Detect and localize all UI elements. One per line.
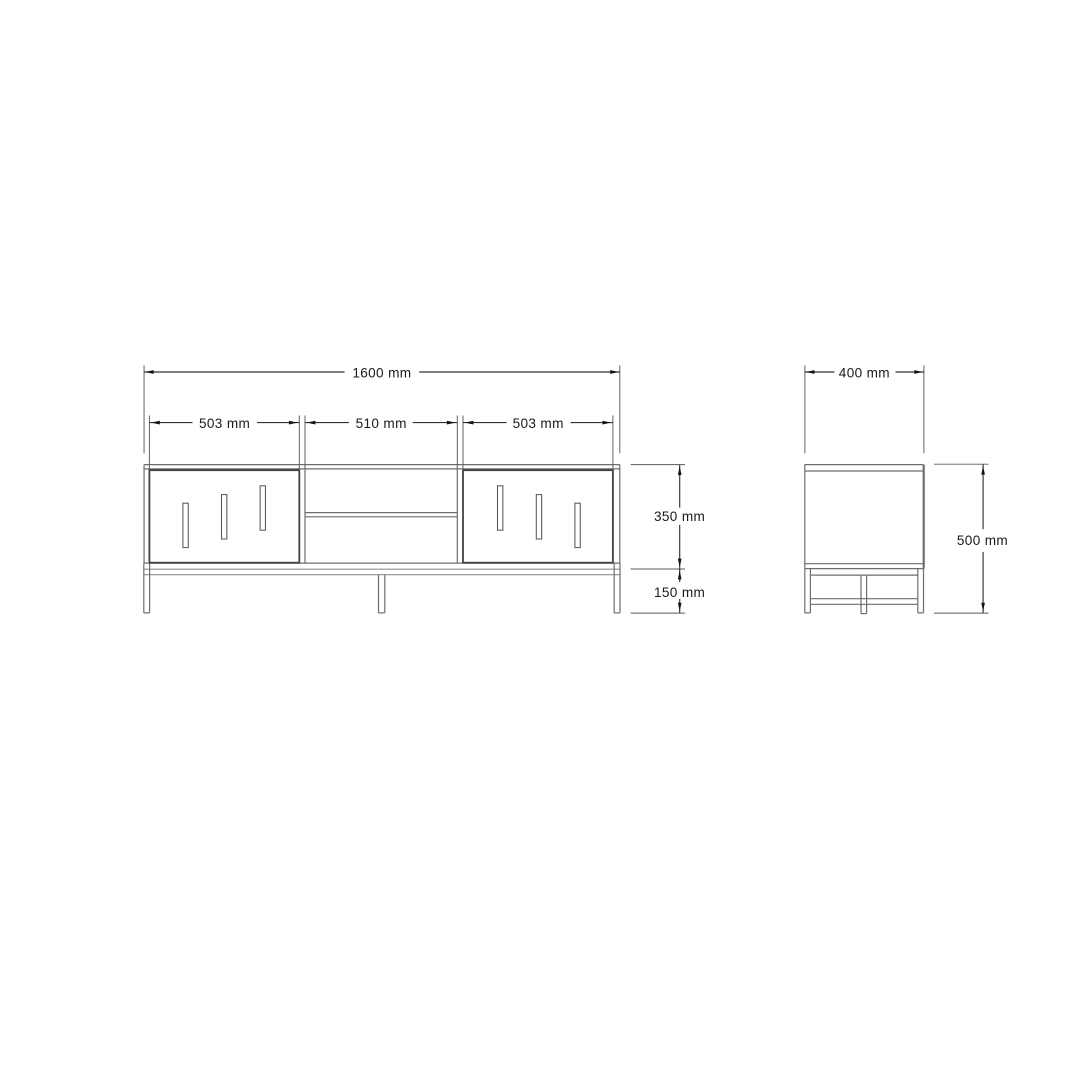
svg-text:350 mm: 350 mm: [654, 509, 705, 524]
svg-text:503 mm: 503 mm: [199, 416, 250, 431]
svg-text:503 mm: 503 mm: [513, 416, 564, 431]
svg-text:1600 mm: 1600 mm: [352, 366, 411, 381]
svg-text:500 mm: 500 mm: [957, 533, 1008, 548]
svg-text:510 mm: 510 mm: [356, 416, 407, 431]
svg-text:150 mm: 150 mm: [654, 585, 705, 600]
svg-text:400 mm: 400 mm: [839, 366, 890, 381]
